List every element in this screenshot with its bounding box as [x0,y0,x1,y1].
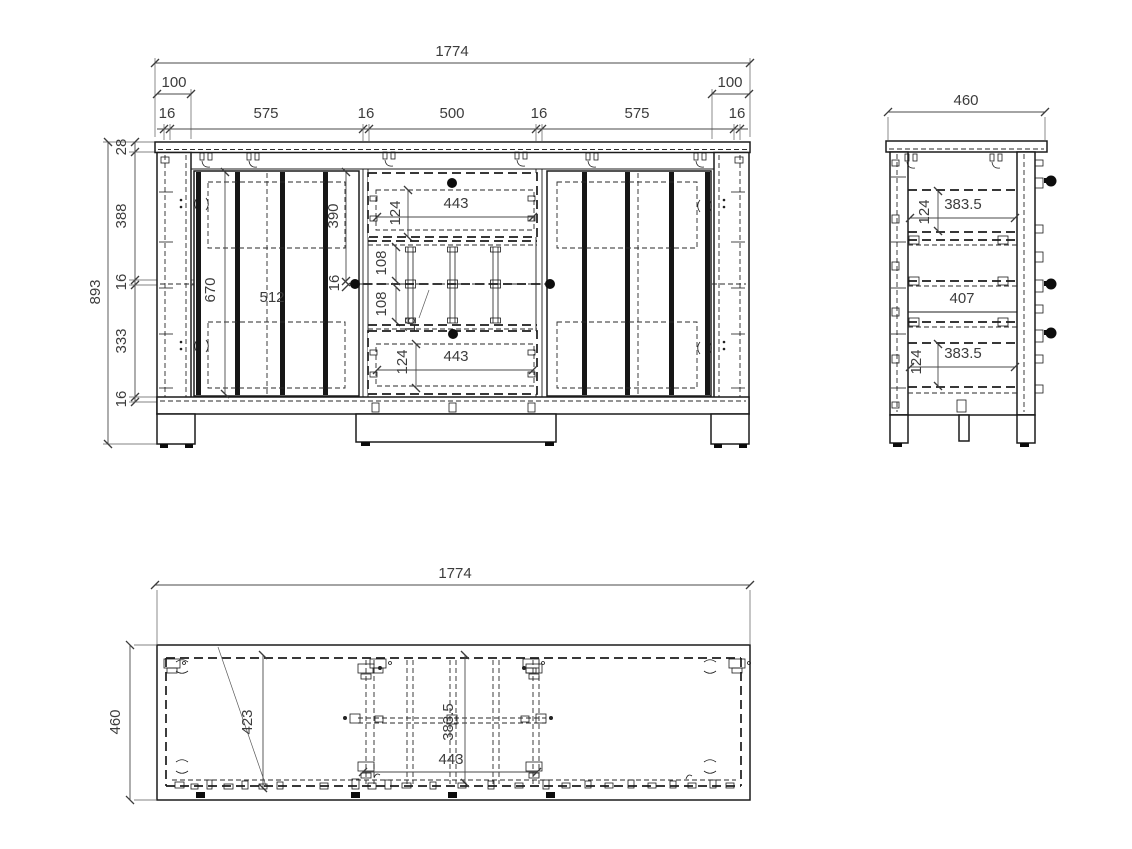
dim-side-bottom-drawer-depth: 383.5 [944,345,982,362]
top-drawer-knob [447,178,457,188]
dim-top-drawer-depth: 383.5 [440,703,457,741]
dim-bottom-drawer-width: 443 [443,348,468,365]
technical-drawing-sheet: 1774 100 100 16 575 16 500 16 575 16 893 [0,0,1132,849]
dim-front-chain-4: 16 [531,105,548,122]
dim-top-drawer-width: 443 [438,751,463,768]
dim-door-upper-section: 390 [325,203,342,228]
bottle-rack-dividers [406,247,501,323]
dim-front-overhang-left: 100 [161,74,186,91]
front-center-plinth [356,414,556,442]
side-front-hardware [1035,160,1043,393]
dim-top-drawer-height: 124 [387,200,404,225]
dim-side-depth-total: 460 [953,92,978,109]
dim-top-width-total: 1774 [438,565,471,582]
side-knobs [1044,176,1057,339]
dim-front-hchain-2: 16 [113,274,130,291]
dim-top-drawer-width: 443 [443,195,468,212]
left-door-knob [350,279,360,289]
dim-rack-lower: 108 [373,291,390,316]
dim-front-overhang-right: 100 [717,74,742,91]
front-left-door: 670 512 390 16 [180,171,360,396]
dim-top-depth-total: 460 [107,709,124,734]
dim-front-hchain-3: 333 [113,328,130,353]
dim-front-chain-2: 16 [358,105,375,122]
dim-front-height-total: 893 [87,279,104,304]
dim-front-chain-3: 500 [439,105,464,122]
side-view: 460 383.5 124 407 38 [886,92,1057,447]
top-panel-fittings [200,152,706,167]
side-back-leg [890,415,908,443]
dim-front-hchain-1: 388 [113,203,130,228]
dim-front-hchain-4: 16 [113,391,130,408]
front-right-door [545,171,725,396]
dim-bottom-drawer-height: 124 [394,349,411,374]
dim-rack-upper: 108 [373,250,390,275]
dim-front-chain-6: 16 [729,105,746,122]
bottom-drawer-knob [448,329,458,339]
dim-door-panel-height: 670 [202,277,219,302]
front-center-section: 443 124 108 108 16 443 124 [363,173,542,394]
right-door-knob [545,279,555,289]
dim-door-panel-width: 512 [259,289,284,306]
dim-front-chain-1: 575 [253,105,278,122]
dim-side-bottom-drawer-height: 124 [908,349,925,374]
front-view: 1774 100 100 16 575 16 500 16 575 16 893 [87,43,750,448]
dim-side-top-drawer-height: 124 [916,199,933,224]
front-left-leg [157,414,195,444]
dim-side-top-drawer-depth: 383.5 [944,196,982,213]
side-front-leg [1017,415,1035,443]
dim-mid-shelf-thickness: 16 [326,275,343,292]
dim-side-middle-clearance: 407 [949,290,974,307]
dim-front-width-total: 1774 [435,43,468,60]
dim-front-chain-5: 575 [624,105,649,122]
furniture-drawing-canvas: 1774 100 100 16 575 16 500 16 575 16 893 [0,0,1132,849]
side-center-foot [959,415,969,441]
dim-front-hchain-0: 28 [113,139,130,156]
dim-top-door-panel: 423 [239,709,256,734]
top-view: 1774 460 423 [107,565,751,800]
side-view-dimensions: 460 [888,92,1045,140]
front-right-leg [711,414,749,444]
dim-front-chain-0: 16 [159,105,176,122]
